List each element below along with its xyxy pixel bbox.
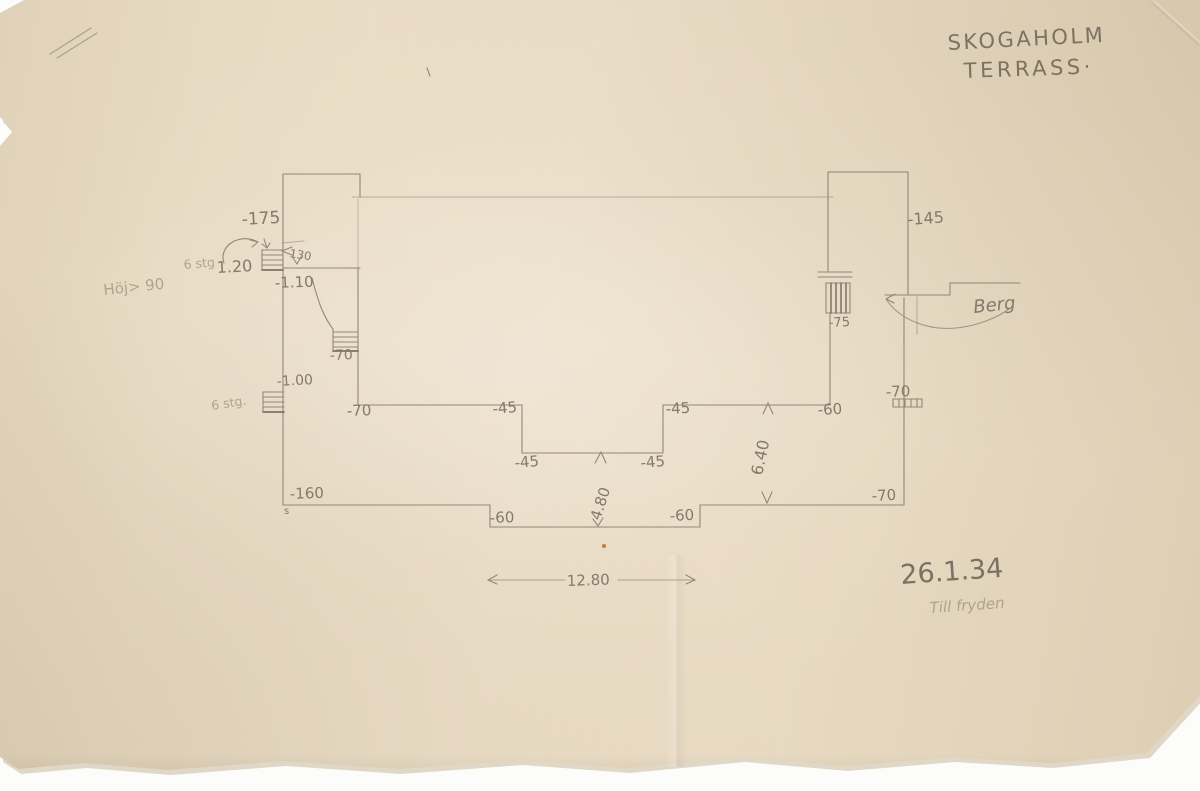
right-stair-treads <box>831 283 846 313</box>
level-label-right-wall-lower: -70 <box>871 486 896 505</box>
sheet-title-line1: SKOGAHOLM <box>947 23 1106 55</box>
level-label-bottom-step-right: -60 <box>669 506 694 525</box>
corner-crease-highlight <box>1154 1 1200 42</box>
top-left-stair-treads <box>262 250 283 265</box>
dim-130-overline <box>282 241 304 243</box>
level-label-upper-left-terrace: -1.10 <box>275 273 314 292</box>
caret-up-center-icon <box>595 452 606 463</box>
stray-tick-mark <box>427 68 430 76</box>
scanned-sketch-page: { "title": { "line1": "SKOGAHOLM", "line… <box>0 0 1200 786</box>
curved-stair-wall <box>312 278 333 329</box>
dim-label-depth-right: 6.40 <box>747 438 773 477</box>
level-label-right-stair: -75 <box>828 315 850 331</box>
sheet-title-line2: TERRASS· <box>962 54 1094 83</box>
level-label-top-right: -145 <box>907 208 945 229</box>
level-label-top-left: -175 <box>241 208 281 230</box>
date-annotation: 26.1.34 <box>899 553 1004 591</box>
dim-label-stair-width: 130 <box>289 246 313 263</box>
outline-top-left-step <box>283 174 360 197</box>
center-recess-outline <box>522 405 663 453</box>
stair-entry-arrow <box>262 239 270 248</box>
upper-right-lintel <box>818 272 852 277</box>
corner-scribble <box>50 28 97 58</box>
level-label-curved-stair: -70 <box>330 347 353 364</box>
note-stair-left-steps: 6 stg. <box>210 393 247 413</box>
level-label-left-landing: -1.00 <box>276 372 313 390</box>
note-left-margin: Höj> 90 <box>103 275 166 299</box>
caret-down-right-icon <box>762 492 772 503</box>
note-stray-mark: s <box>284 506 289 517</box>
note-rock: Berg <box>972 293 1016 318</box>
level-label-notch-lower-right: -45 <box>640 452 666 472</box>
plan-sketch-svg: SKOGAHOLM TERRASS· -175 -145 6 stg 1.20 … <box>0 0 1200 786</box>
curved-stair-treads <box>333 332 358 347</box>
rock-ledge-wall <box>885 283 1020 295</box>
level-label-bottom-left: -160 <box>290 484 325 503</box>
left-stair-treads <box>263 392 284 407</box>
level-label-right-terrace: -60 <box>817 400 842 419</box>
orange-speck <box>602 544 606 548</box>
level-label-right-wall-upper: -70 <box>886 382 911 401</box>
note-stair-top-steps: 6 stg <box>183 254 215 272</box>
dim-label-stair-rise: 1.20 <box>216 256 253 277</box>
note-below-date: Till fryden <box>929 594 1005 617</box>
level-label-mid-left: -70 <box>347 401 372 420</box>
dim-label-depth-center: 4.80 <box>587 485 614 522</box>
level-label-notch-upper-left: -45 <box>492 398 518 418</box>
level-label-notch-lower-left: -45 <box>514 452 540 472</box>
corner-crease-line <box>1151 2 1199 45</box>
level-label-notch-upper-right: -45 <box>665 399 690 418</box>
dim-label-total-width: 12.80 <box>567 571 611 590</box>
level-label-bottom-step-left: -60 <box>490 508 515 527</box>
